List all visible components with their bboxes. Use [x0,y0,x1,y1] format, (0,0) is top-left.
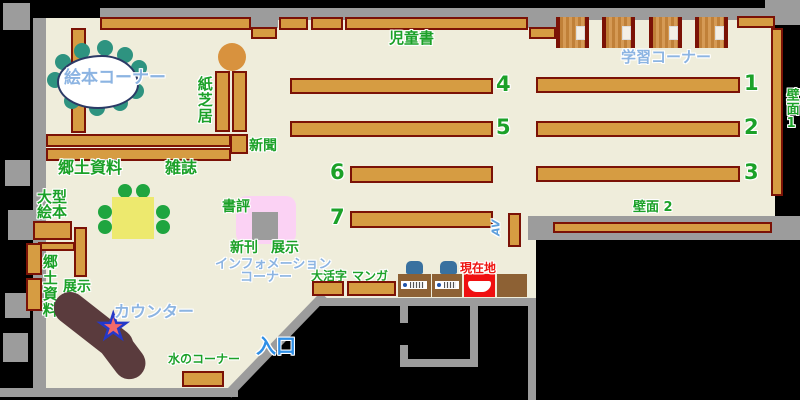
keyboard-keys [444,282,456,288]
wall-shelf [529,27,556,39]
picture-book-corner-label: 絵本コーナー [64,70,166,88]
display-shelf [38,242,75,251]
shelf-4 [290,78,493,94]
kamishibai-label: 紙芝居 [196,76,212,124]
newspaper-shelf [230,134,248,154]
kamishibai-shelf [232,71,247,132]
reading-table [112,197,154,239]
wall-shelf-1 [771,28,783,196]
wall-shelf [345,17,528,30]
shelf-6-number: 6 [330,161,345,183]
pillar [3,333,28,362]
display-stand [252,212,278,240]
local-material-shelf [26,243,42,275]
study-carrel [602,17,635,48]
keyboard-keys [410,282,424,288]
av-label: AV [490,220,502,236]
shelf-2-number: 2 [744,116,759,138]
wall-shelf [251,27,277,39]
wall-top-notch [251,8,278,28]
carrel-seat [715,26,724,40]
childrens-books-label: 児童書 [389,31,434,47]
wall-2-label: 壁面 2 [633,201,673,215]
mouse-icon [437,283,441,287]
alcove-wall [470,303,478,367]
display-center-label: 展示 [271,241,299,256]
library-floor-map: 絵本コーナー 紙芝居 新聞 郷土資料 雑誌 児童書 4 5 6 7 学習コーナー… [0,0,800,400]
manga-shelf [347,281,396,296]
magazines-label: 雑誌 [165,160,197,177]
book-review-label: 書評 [222,200,250,215]
shelf-1 [536,77,740,93]
terminal-chair [406,261,423,274]
counter-label: カウンター [114,304,194,321]
av-shelf [508,213,521,247]
chair-dot [136,184,150,198]
shelf-7-number: 7 [330,206,345,228]
wall-bottom [0,388,238,397]
study-carrel [695,17,728,48]
shelf-4-number: 4 [496,73,511,95]
keyboard [435,281,459,289]
alcove-wall [400,359,478,367]
opac-terminal [398,274,431,297]
shelf-5 [290,121,493,137]
shelf-2 [536,121,740,137]
water-corner-shelf [182,371,224,387]
shelf-3-number: 3 [744,161,759,183]
pillar [5,160,30,186]
large-picture-books-label-2: 絵本 [37,205,67,221]
kamishibai-table [218,43,246,71]
wall-1-label: 壁面1 [784,88,798,132]
shelf-3 [536,166,740,182]
chair-dot [156,220,170,234]
display-shelf [74,227,87,277]
magazine-shelf [46,134,231,147]
alcove-wall [400,303,408,323]
study-corner-label: 学習コーナー [621,50,711,66]
local-material-shelf [26,278,42,311]
current-location-box [464,274,495,297]
kamishibai-shelf [215,71,230,132]
study-carrel [649,17,682,48]
opac-terminal [432,274,462,297]
chair-dot [156,205,170,219]
return-shelf [497,274,527,297]
large-picture-book-shelf [33,221,72,240]
carrel-seat [622,26,631,40]
large-print-shelf [312,281,344,296]
wall-vertical-right [528,298,536,400]
carrel-seat [576,26,585,40]
shelf-7 [350,211,493,228]
wall-2-shelf [553,222,772,233]
wall-top-junction [527,8,557,28]
keyboard [401,281,427,289]
water-corner-label: 水のコーナー [168,353,240,366]
wall-bottom-middle [315,298,536,306]
entrance-label: 入口 [256,336,296,357]
newspaper-label: 新聞 [249,139,277,154]
current-location-marker [468,281,491,292]
wall-shelf [100,17,251,30]
shelf-6 [350,166,493,183]
current-location-label: 現在地 [460,262,496,275]
pillar [3,3,30,30]
wall-shelf [737,16,775,28]
carrel-seat [669,26,678,40]
chair-dot [98,220,112,234]
shelf-1-number: 1 [744,72,759,94]
wall-shelf [279,17,308,30]
study-carrel [556,17,589,48]
chair-dot [98,205,112,219]
new-books-label: 新刊 [230,241,258,256]
chair-dot [118,184,132,198]
information-corner-label-2: コーナー [240,271,292,285]
mouse-icon [403,283,407,287]
local-materials-label: 郷土資料 [58,160,122,177]
terminal-chair [440,261,457,274]
shelf-5-number: 5 [496,116,511,138]
wall-shelf [311,17,343,30]
stool-dot [97,40,113,56]
